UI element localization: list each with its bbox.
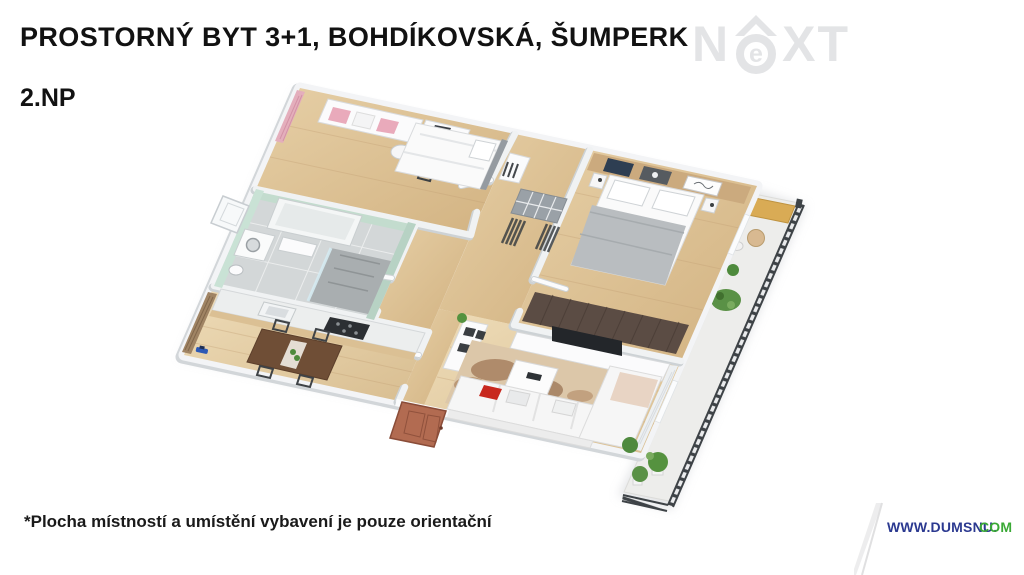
art-moon <box>652 172 658 178</box>
lamp-right <box>710 203 714 207</box>
bush-shade <box>716 292 724 300</box>
table-plant-2 <box>294 355 300 361</box>
corner-plant <box>622 437 638 453</box>
page-root: PROSTORNÝ BYT 3+1, BOHDÍKOVSKÁ, ŠUMPERK … <box>0 0 1024 575</box>
website-url-tld: COM <box>979 519 1012 535</box>
ribbon-band <box>862 503 1024 575</box>
pot-plant-2 <box>632 466 648 482</box>
bush-light <box>727 301 735 309</box>
lamp-left <box>598 178 602 182</box>
toilet <box>229 265 243 275</box>
balcony-table <box>748 230 765 247</box>
pot-plant-highlight <box>646 452 654 460</box>
shelf-plant <box>457 313 467 323</box>
table-plant-1 <box>290 349 296 355</box>
balcony-plant-small <box>727 264 739 276</box>
washer-door <box>247 239 260 252</box>
door-knob <box>439 426 443 430</box>
disclaimer-note: *Plocha místností a umístění vybavení je… <box>24 512 492 532</box>
floorplan-3d-render <box>0 0 1024 575</box>
website-ribbon: WWW.DUMSNU. COM <box>854 495 1024 575</box>
